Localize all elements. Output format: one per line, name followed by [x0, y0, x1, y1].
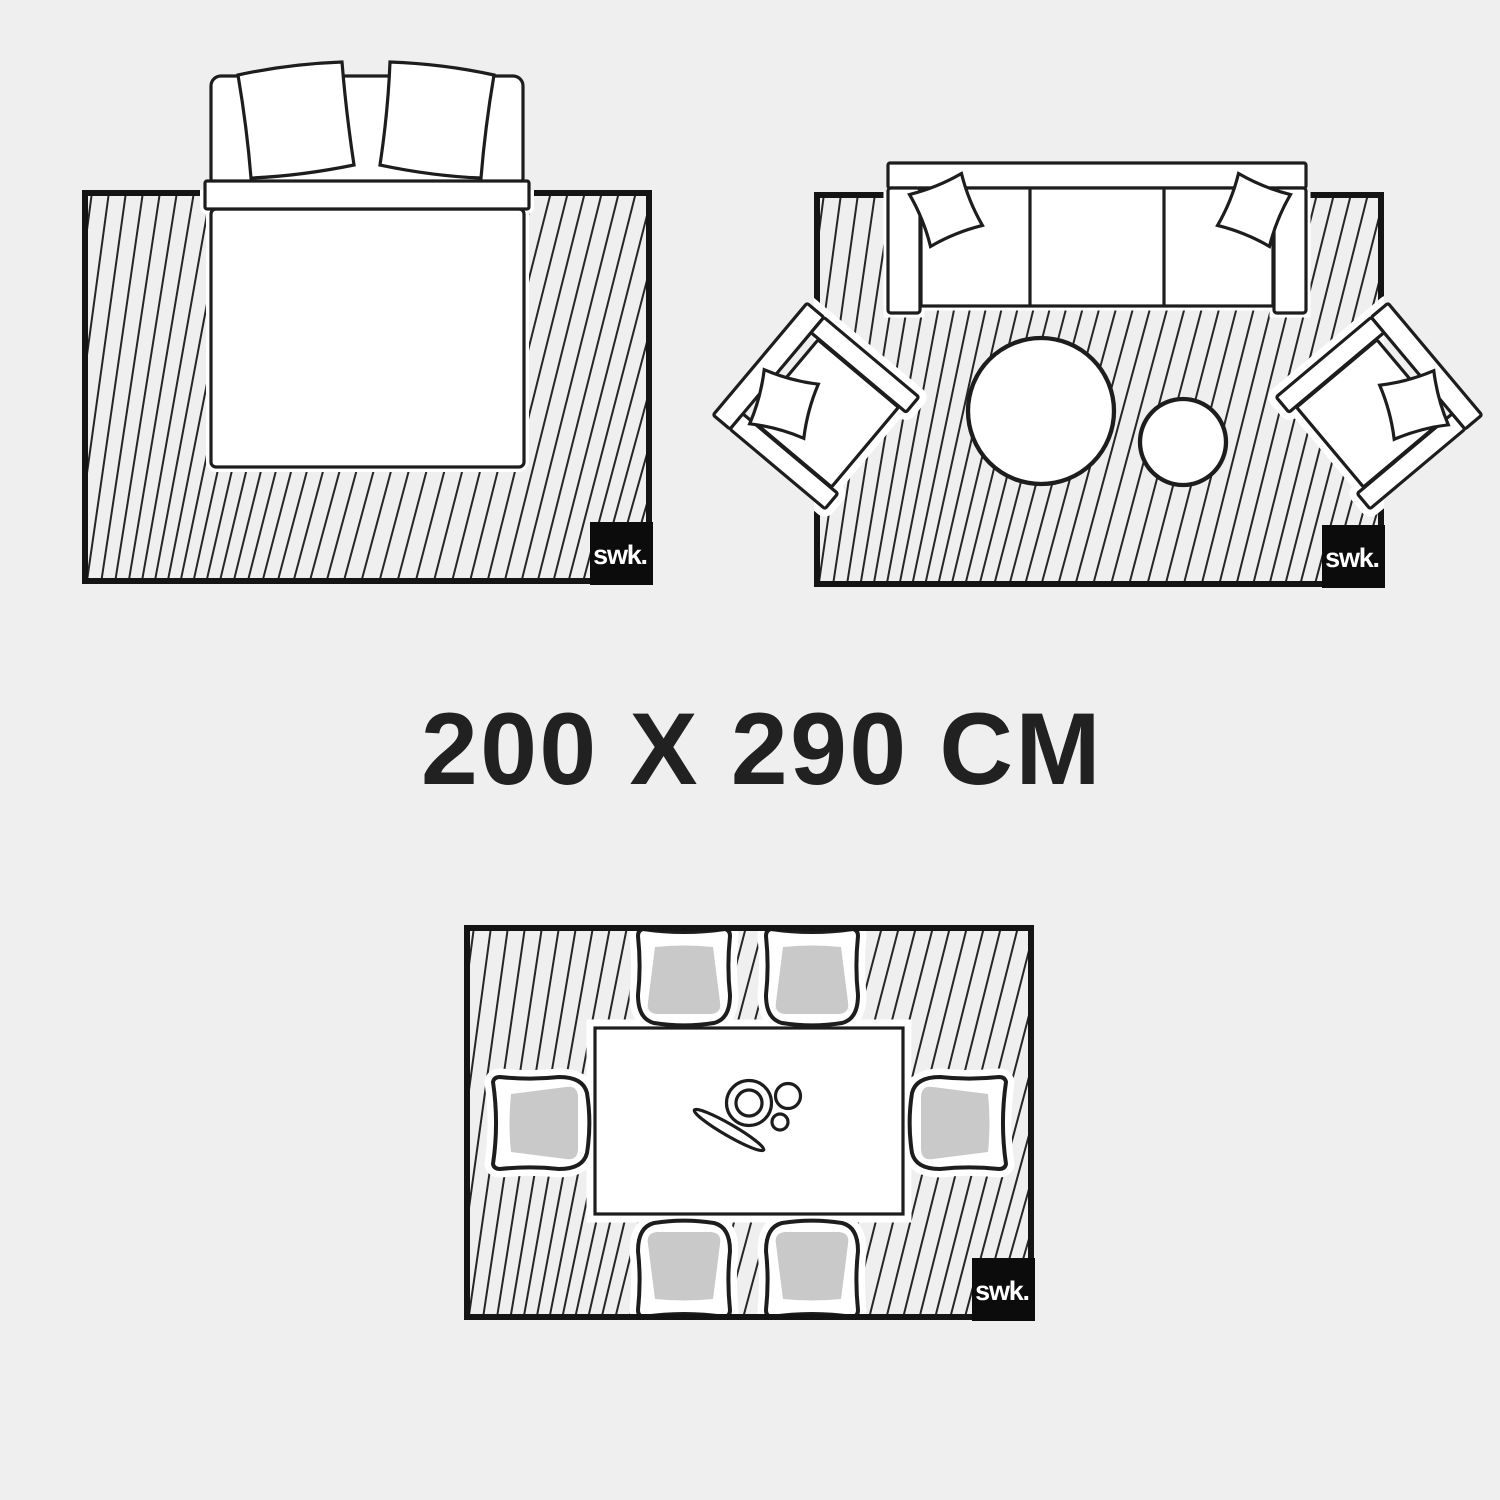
svg-text:swk.: swk.: [1325, 543, 1379, 573]
svg-text:swk.: swk.: [593, 540, 647, 570]
svg-text:swk.: swk.: [975, 1276, 1029, 1306]
svg-text:200 X 290 CM: 200 X 290 CM: [421, 692, 1103, 806]
